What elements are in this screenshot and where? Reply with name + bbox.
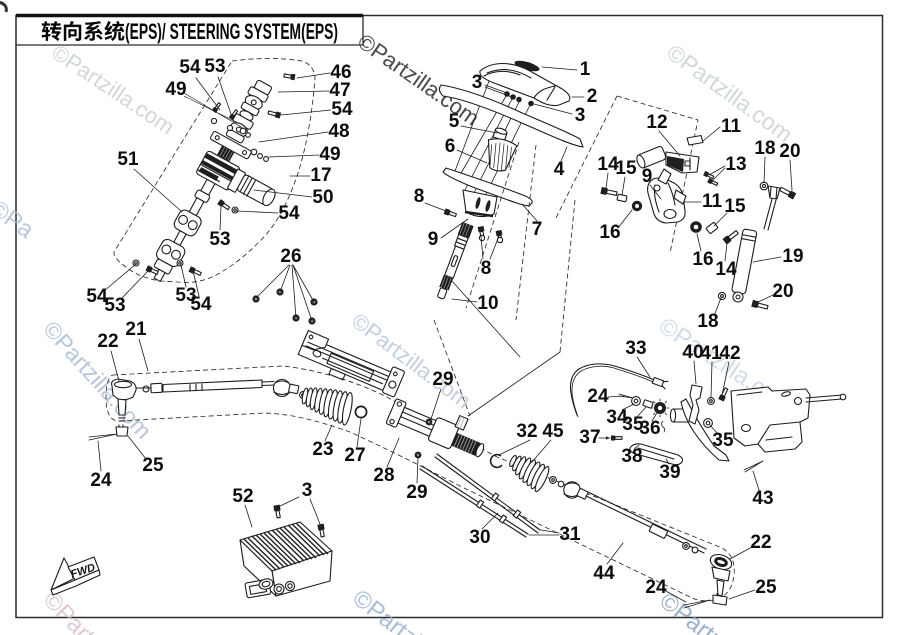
svg-text:20: 20 bbox=[779, 141, 800, 162]
svg-text:47: 47 bbox=[329, 80, 350, 101]
svg-text:5: 5 bbox=[449, 111, 460, 132]
svg-text:(EPS)/ STEERING SYSTEM(EPS): (EPS)/ STEERING SYSTEM(EPS) bbox=[125, 19, 338, 44]
svg-text:15: 15 bbox=[724, 196, 746, 217]
svg-text:23: 23 bbox=[312, 439, 333, 460]
svg-text:13: 13 bbox=[725, 154, 746, 175]
svg-text:3: 3 bbox=[302, 480, 313, 501]
svg-text:25: 25 bbox=[755, 577, 777, 598]
svg-text:3: 3 bbox=[575, 105, 586, 126]
svg-text:52: 52 bbox=[232, 486, 253, 507]
svg-text:42: 42 bbox=[719, 343, 740, 364]
svg-text:20: 20 bbox=[772, 281, 793, 302]
svg-text:1: 1 bbox=[580, 59, 591, 80]
svg-text:22: 22 bbox=[750, 532, 771, 553]
svg-text:8: 8 bbox=[414, 186, 425, 207]
svg-text:29: 29 bbox=[432, 369, 453, 390]
svg-text:49: 49 bbox=[319, 144, 340, 165]
svg-text:11: 11 bbox=[702, 191, 723, 212]
svg-text:54: 54 bbox=[278, 203, 300, 224]
svg-text:16: 16 bbox=[692, 249, 713, 270]
svg-text:8: 8 bbox=[481, 258, 492, 279]
svg-text:22: 22 bbox=[97, 331, 118, 352]
svg-text:53: 53 bbox=[209, 229, 230, 250]
svg-text:24: 24 bbox=[645, 577, 667, 598]
svg-text:44: 44 bbox=[593, 563, 615, 584]
svg-text:24: 24 bbox=[587, 386, 609, 407]
svg-text:50: 50 bbox=[312, 187, 333, 208]
svg-text:7: 7 bbox=[532, 219, 543, 240]
svg-text:54: 54 bbox=[331, 99, 353, 120]
svg-text:30: 30 bbox=[469, 527, 490, 548]
svg-text:43: 43 bbox=[752, 488, 773, 509]
svg-text:11: 11 bbox=[721, 116, 742, 137]
svg-text:36: 36 bbox=[639, 418, 660, 439]
svg-text:18: 18 bbox=[697, 311, 718, 332]
svg-text:33: 33 bbox=[625, 338, 646, 359]
svg-text:39: 39 bbox=[659, 462, 680, 483]
svg-text:53: 53 bbox=[204, 56, 225, 77]
svg-text:45: 45 bbox=[542, 421, 564, 442]
svg-text:9: 9 bbox=[428, 229, 439, 250]
svg-text:49: 49 bbox=[165, 79, 186, 100]
svg-text:24: 24 bbox=[90, 470, 112, 491]
svg-text:2: 2 bbox=[587, 86, 598, 107]
svg-text:29: 29 bbox=[406, 482, 427, 503]
svg-text:18: 18 bbox=[754, 138, 775, 159]
svg-text:28: 28 bbox=[373, 465, 394, 486]
svg-text:53: 53 bbox=[104, 295, 125, 316]
svg-text:26: 26 bbox=[280, 246, 301, 267]
svg-text:31: 31 bbox=[559, 524, 581, 545]
svg-text:3: 3 bbox=[472, 72, 483, 93]
svg-text:9: 9 bbox=[642, 166, 653, 187]
svg-text:48: 48 bbox=[328, 121, 349, 142]
svg-text:27: 27 bbox=[344, 445, 365, 466]
svg-text:32: 32 bbox=[516, 421, 537, 442]
svg-text:14: 14 bbox=[715, 259, 737, 280]
svg-text:19: 19 bbox=[782, 246, 803, 267]
svg-text:37: 37 bbox=[579, 427, 600, 448]
svg-text:15: 15 bbox=[615, 158, 637, 179]
svg-text:38: 38 bbox=[621, 446, 642, 467]
svg-text:54: 54 bbox=[190, 294, 212, 315]
svg-text:54: 54 bbox=[179, 57, 201, 78]
svg-text:12: 12 bbox=[646, 112, 667, 133]
svg-text:16: 16 bbox=[599, 222, 620, 243]
svg-text:17: 17 bbox=[310, 165, 331, 186]
svg-text:35: 35 bbox=[712, 430, 734, 451]
svg-text:10: 10 bbox=[477, 293, 498, 314]
svg-text:51: 51 bbox=[117, 149, 139, 170]
svg-text:4: 4 bbox=[554, 159, 565, 180]
svg-text:21: 21 bbox=[125, 319, 147, 340]
svg-text:6: 6 bbox=[445, 136, 456, 157]
